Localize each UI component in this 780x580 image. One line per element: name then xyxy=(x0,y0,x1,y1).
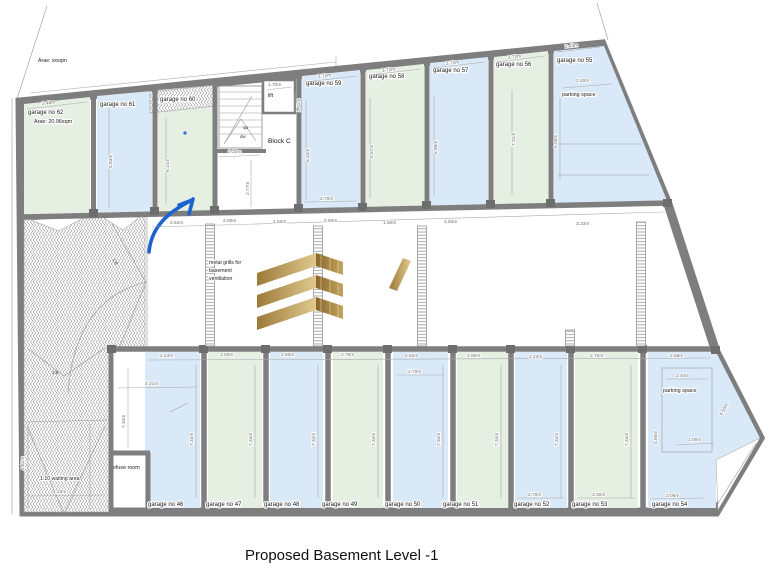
ventilation-grill xyxy=(637,222,646,346)
ventilation-grill xyxy=(418,226,427,346)
svg-text:2.40m: 2.40m xyxy=(676,373,689,379)
svg-text:6.98m: 6.98m xyxy=(433,141,439,154)
garage-52-label: garage no 52 xyxy=(514,502,550,508)
page: { "title": "Proposed Basement Level -1",… xyxy=(0,0,780,580)
svg-text:2.68m: 2.68m xyxy=(670,353,683,359)
garage-59-label: garage no 59 xyxy=(306,81,342,87)
dim-label: 4.81m xyxy=(20,457,26,470)
garage-53-room xyxy=(575,352,638,508)
staircase: up dw xyxy=(219,86,262,148)
svg-text:7.34m: 7.34m xyxy=(189,433,195,446)
svg-text:6.14m: 6.14m xyxy=(165,159,171,172)
garage-54-label: garage no 54 xyxy=(652,502,688,508)
gold-brush-mark xyxy=(389,258,411,291)
garage-52-room xyxy=(515,352,567,508)
svg-text:1.50m: 1.50m xyxy=(383,220,396,226)
waiting-area-label: 1:10 waiting area xyxy=(40,476,80,482)
garage-47-room xyxy=(208,352,262,508)
svg-text:7.34m: 7.34m xyxy=(311,433,317,446)
lift-label: lift xyxy=(268,93,274,99)
garage-49-label: garage no 49 xyxy=(322,502,358,508)
svg-text:7.34m: 7.34m xyxy=(554,433,560,446)
svg-text:2.00m: 2.00m xyxy=(223,218,236,224)
svg-text:ventilation: ventilation xyxy=(209,276,232,282)
svg-text:4.80m: 4.80m xyxy=(653,431,659,444)
svg-text:2.75m: 2.75m xyxy=(341,352,354,358)
garage-56-room xyxy=(494,51,548,207)
garage-57-room xyxy=(430,57,488,208)
dim-label: 4.22m xyxy=(53,489,66,495)
garage-49-room xyxy=(333,352,383,508)
svg-text:3.33m: 3.33m xyxy=(576,221,589,227)
stairs-down-label: dw xyxy=(240,134,246,139)
svg-text:2.53m: 2.53m xyxy=(444,219,457,225)
garage-55-label: garage no 55 xyxy=(557,58,593,64)
garage-62-area-label: Arae: 20.96sqm xyxy=(34,119,73,125)
floor-plan: Arae: xxsqm xyxy=(0,0,780,580)
svg-text:metal grills for: metal grills for xyxy=(209,260,242,266)
garage-51-room xyxy=(457,352,508,508)
svg-text:5.00m: 5.00m xyxy=(553,135,559,148)
svg-text:7.34m: 7.34m xyxy=(624,433,630,446)
garage-46-room xyxy=(145,352,200,508)
refuse-room: refuse room xyxy=(111,453,150,510)
ventilation-grill xyxy=(206,224,215,346)
garage-53-label: garage no 53 xyxy=(572,502,608,508)
gold-logo-watermark xyxy=(257,253,411,330)
top-row-garages xyxy=(24,46,668,218)
blue-dot-marker xyxy=(183,131,186,134)
garage-47-label: garage no 47 xyxy=(206,502,242,508)
parking-space-label: parking space xyxy=(663,388,697,394)
svg-text:7.34m: 7.34m xyxy=(371,433,377,446)
ramp-grade-label: 1:8 xyxy=(52,370,59,375)
site-area-note: Arae: xxsqm xyxy=(38,58,67,64)
svg-text:2.93m: 2.93m xyxy=(281,352,294,358)
svg-text:1.00m: 1.00m xyxy=(688,437,701,443)
refuse-room-label: refuse room xyxy=(111,465,140,471)
dim-label: 1.71m xyxy=(296,99,302,112)
garage-51-label: garage no 51 xyxy=(443,502,479,508)
garage-50-label: garage no 50 xyxy=(385,502,421,508)
dim-label: 2.77m xyxy=(245,182,251,195)
svg-text:3.30m: 3.30m xyxy=(592,492,605,498)
stairs-up-label: up xyxy=(243,125,248,130)
svg-text:7.34m: 7.34m xyxy=(121,415,127,428)
svg-text:2.54m: 2.54m xyxy=(170,220,183,226)
garage-61-label: garage no 61 xyxy=(100,102,136,108)
wall-piers xyxy=(89,199,720,354)
parking-space-label: parking space xyxy=(562,92,596,98)
svg-text:2.70m: 2.70m xyxy=(320,196,333,202)
garage-58-label: garage no 58 xyxy=(369,74,405,80)
svg-text:2.70m: 2.70m xyxy=(408,369,421,375)
svg-text:7.34m: 7.34m xyxy=(436,433,442,446)
dim-label: 2.32m xyxy=(228,149,241,155)
svg-text:7.31m: 7.31m xyxy=(511,133,517,146)
svg-text:3.00m: 3.00m xyxy=(220,352,233,358)
svg-text:2.50m: 2.50m xyxy=(324,218,337,224)
garage-46-label: garage no 46 xyxy=(148,502,184,508)
garage-58-room xyxy=(366,64,424,210)
block-c-label: Block C xyxy=(268,138,291,145)
svg-text:5.83m: 5.83m xyxy=(108,155,114,168)
svg-text:2.70m: 2.70m xyxy=(528,492,541,498)
svg-text:2.72m: 2.72m xyxy=(590,353,603,359)
svg-text:2.62m: 2.62m xyxy=(405,353,418,359)
svg-text:7.34m: 7.34m xyxy=(494,433,500,446)
svg-text:4.21m: 4.21m xyxy=(145,381,158,387)
garage-56-label: garage no 56 xyxy=(496,62,532,68)
ventilation-grill xyxy=(566,330,575,346)
garage-60-label: garage no 60 xyxy=(160,97,196,103)
svg-text:6.34m: 6.34m xyxy=(305,149,311,162)
svg-text:3.06m: 3.06m xyxy=(666,493,679,499)
garage-50-room xyxy=(393,352,448,508)
svg-text:basement: basement xyxy=(209,268,232,274)
garage-61-room xyxy=(97,91,152,216)
garage-57-label: garage no 57 xyxy=(433,68,469,74)
svg-text:2.40m: 2.40m xyxy=(576,78,589,84)
svg-text:2.43m: 2.43m xyxy=(160,353,173,359)
svg-text:2.42m: 2.42m xyxy=(529,354,542,360)
svg-text:1.52m: 1.52m xyxy=(273,219,286,225)
svg-text:7.34m: 7.34m xyxy=(248,433,254,446)
drawing-title: Proposed Basement Level -1 xyxy=(245,547,438,564)
garage-48-label: garage no 48 xyxy=(264,502,300,508)
lift-shaft: lift 1.70m 1.71m xyxy=(263,80,302,113)
garage-59-room xyxy=(302,70,360,211)
svg-text:2.80m: 2.80m xyxy=(467,353,480,359)
ventilation-grills xyxy=(206,222,646,346)
garage-62-label: garage no 62 xyxy=(28,110,64,116)
dim-label: 1.70m xyxy=(268,82,281,88)
garage-48-room xyxy=(270,352,323,508)
garage-55-room xyxy=(554,46,668,205)
svg-text:6.97m: 6.97m xyxy=(369,145,375,158)
ventilation-note: metal grills for basement ventilation xyxy=(209,260,242,282)
garage-54-room xyxy=(648,352,760,508)
